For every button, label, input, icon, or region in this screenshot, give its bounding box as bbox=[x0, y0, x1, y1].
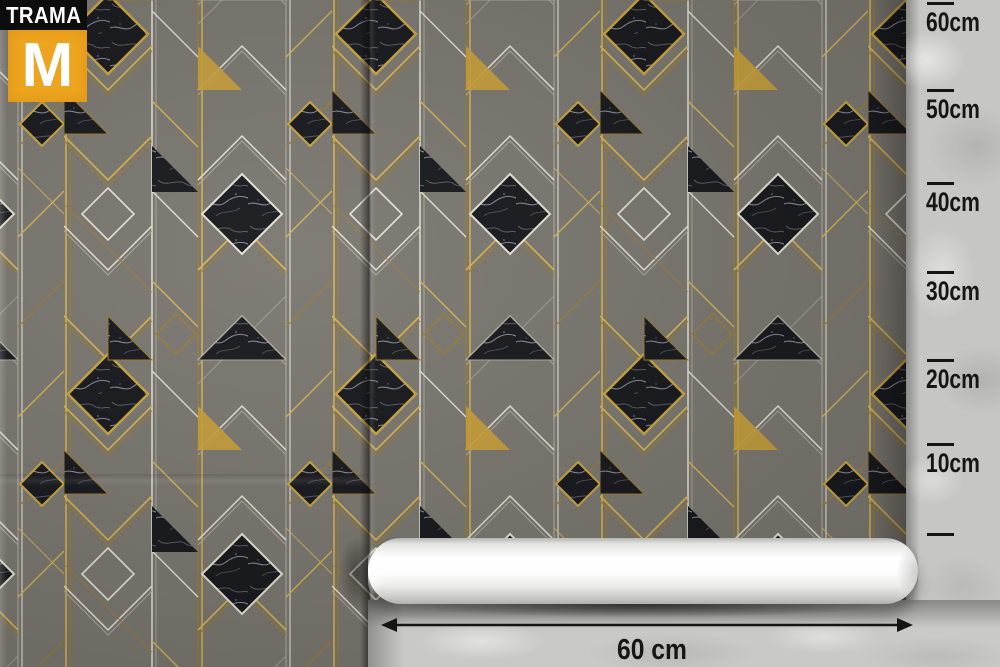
brand-initial-text: M bbox=[22, 30, 74, 102]
width-dimension-label: 60 cm bbox=[601, 634, 703, 667]
ruler-tick-icon bbox=[927, 443, 954, 446]
ruler-tick-icon bbox=[927, 89, 954, 92]
ruler-label: 30cm bbox=[926, 277, 981, 305]
ruler-tick-icon bbox=[927, 2, 954, 5]
ruler-tick-icon bbox=[927, 271, 954, 274]
ruler-tick-icon bbox=[927, 359, 954, 362]
wallpaper-roll bbox=[368, 538, 918, 604]
ruler-tick-icon bbox=[927, 182, 954, 185]
ruler-label: 50cm bbox=[926, 95, 981, 123]
ruler-label: 20cm bbox=[926, 365, 981, 393]
brand-name-text: TRAMA bbox=[6, 2, 81, 29]
ruler-wall-strip: 60cm50cm40cm30cm20cm10cm bbox=[906, 0, 1000, 667]
ruler-label: 60cm bbox=[926, 8, 981, 36]
ruler-label: 10cm bbox=[926, 449, 981, 477]
ruler-label: 40cm bbox=[926, 188, 981, 216]
ruler-tick-icon bbox=[927, 533, 954, 536]
product-photo-stage: 60cm50cm40cm30cm20cm10cm 60 cm TRAMA M bbox=[0, 0, 1000, 667]
brand-name-bar: TRAMA bbox=[0, 0, 87, 30]
brand-initial-badge: M bbox=[8, 30, 87, 102]
